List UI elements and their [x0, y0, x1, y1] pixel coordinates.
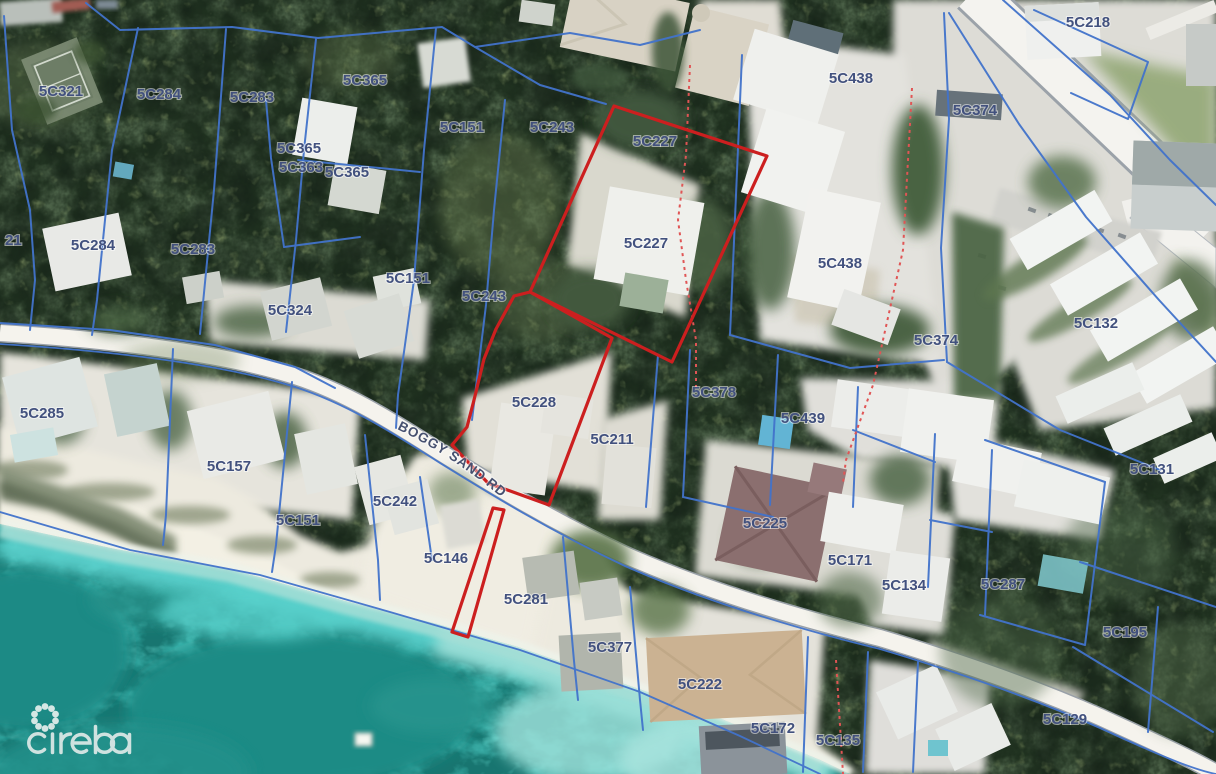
svg-text:5C195: 5C195 — [1103, 624, 1147, 641]
svg-text:5C281: 5C281 — [504, 591, 548, 608]
svg-text:5C151: 5C151 — [386, 270, 430, 287]
svg-text:5C374: 5C374 — [914, 332, 959, 349]
svg-text:5C439: 5C439 — [781, 410, 825, 427]
svg-text:5C172: 5C172 — [751, 720, 795, 737]
svg-text:5C171: 5C171 — [828, 552, 872, 569]
svg-text:5C222: 5C222 — [678, 676, 722, 693]
svg-text:5C287: 5C287 — [981, 576, 1025, 593]
svg-text:5C218: 5C218 — [1066, 14, 1110, 31]
svg-text:5C227: 5C227 — [633, 133, 677, 150]
svg-text:5C242: 5C242 — [373, 493, 417, 510]
svg-text:5C285: 5C285 — [20, 405, 64, 422]
svg-text:21: 21 — [5, 232, 22, 249]
svg-text:5C227: 5C227 — [624, 235, 668, 252]
svg-text:5C228: 5C228 — [512, 394, 556, 411]
svg-text:5C243: 5C243 — [530, 119, 574, 136]
svg-text:5C225: 5C225 — [743, 515, 787, 532]
svg-text:5C365: 5C365 — [343, 72, 387, 89]
svg-text:5C284: 5C284 — [71, 237, 116, 254]
svg-text:5C151: 5C151 — [276, 512, 320, 529]
svg-text:5C377: 5C377 — [588, 639, 632, 656]
svg-text:5C135: 5C135 — [816, 732, 860, 749]
svg-text:5C378: 5C378 — [692, 384, 736, 401]
svg-text:5C131: 5C131 — [1130, 461, 1174, 478]
svg-text:5C321: 5C321 — [39, 83, 83, 100]
svg-text:5C129: 5C129 — [1043, 711, 1087, 728]
svg-text:5C146: 5C146 — [424, 550, 468, 567]
svg-text:5C438: 5C438 — [818, 255, 862, 272]
svg-text:5C243: 5C243 — [462, 288, 506, 305]
svg-text:5C151: 5C151 — [440, 119, 484, 136]
svg-text:5C211: 5C211 — [590, 431, 633, 448]
svg-text:5C365: 5C365 — [277, 140, 321, 157]
svg-text:5C374: 5C374 — [953, 102, 998, 119]
svg-text:5C283: 5C283 — [171, 241, 215, 258]
svg-text:5C134: 5C134 — [882, 577, 927, 594]
svg-text:5C438: 5C438 — [829, 70, 873, 87]
svg-text:5C284: 5C284 — [137, 86, 182, 103]
svg-text:5C324: 5C324 — [268, 302, 313, 319]
svg-text:5C132: 5C132 — [1074, 315, 1118, 332]
svg-text:5C283: 5C283 — [230, 89, 274, 106]
svg-text:5C157: 5C157 — [207, 458, 251, 475]
svg-text:5C365: 5C365 — [325, 164, 369, 181]
svg-text:5C363: 5C363 — [279, 159, 323, 176]
